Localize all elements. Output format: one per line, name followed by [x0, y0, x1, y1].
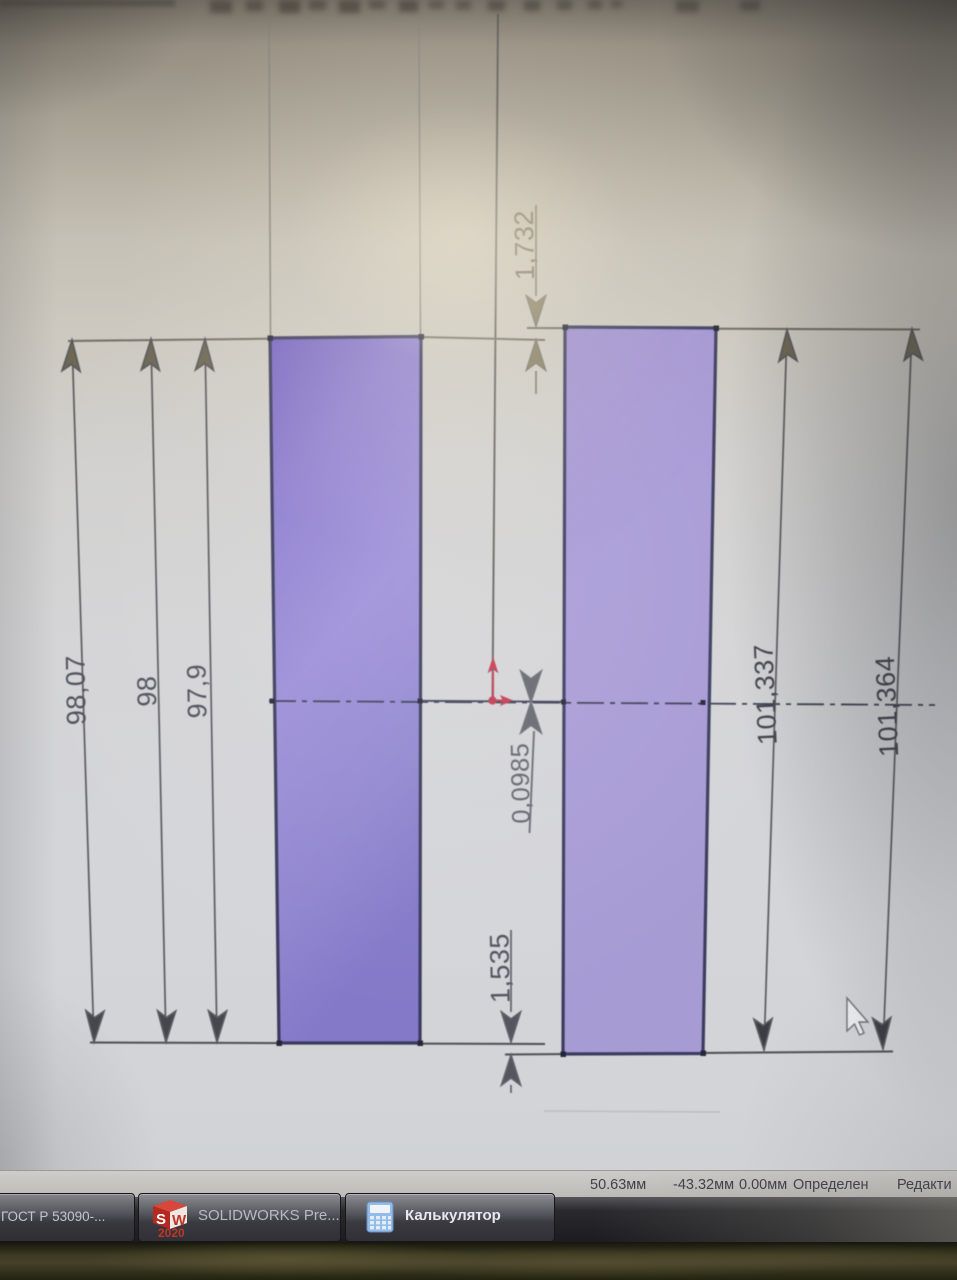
svg-text:1,535: 1,535 [484, 933, 515, 1004]
svg-text:98: 98 [132, 675, 163, 707]
svg-text:0,0985: 0,0985 [506, 742, 535, 823]
svg-text:97,9: 97,9 [182, 664, 213, 719]
svg-text:98,07: 98,07 [60, 655, 91, 726]
svg-text:101,364: 101,364 [870, 655, 904, 757]
svg-text:2020: 2020 [158, 1226, 185, 1238]
svg-text:1,732: 1,732 [509, 210, 540, 281]
svg-text:101,337: 101,337 [748, 643, 782, 745]
